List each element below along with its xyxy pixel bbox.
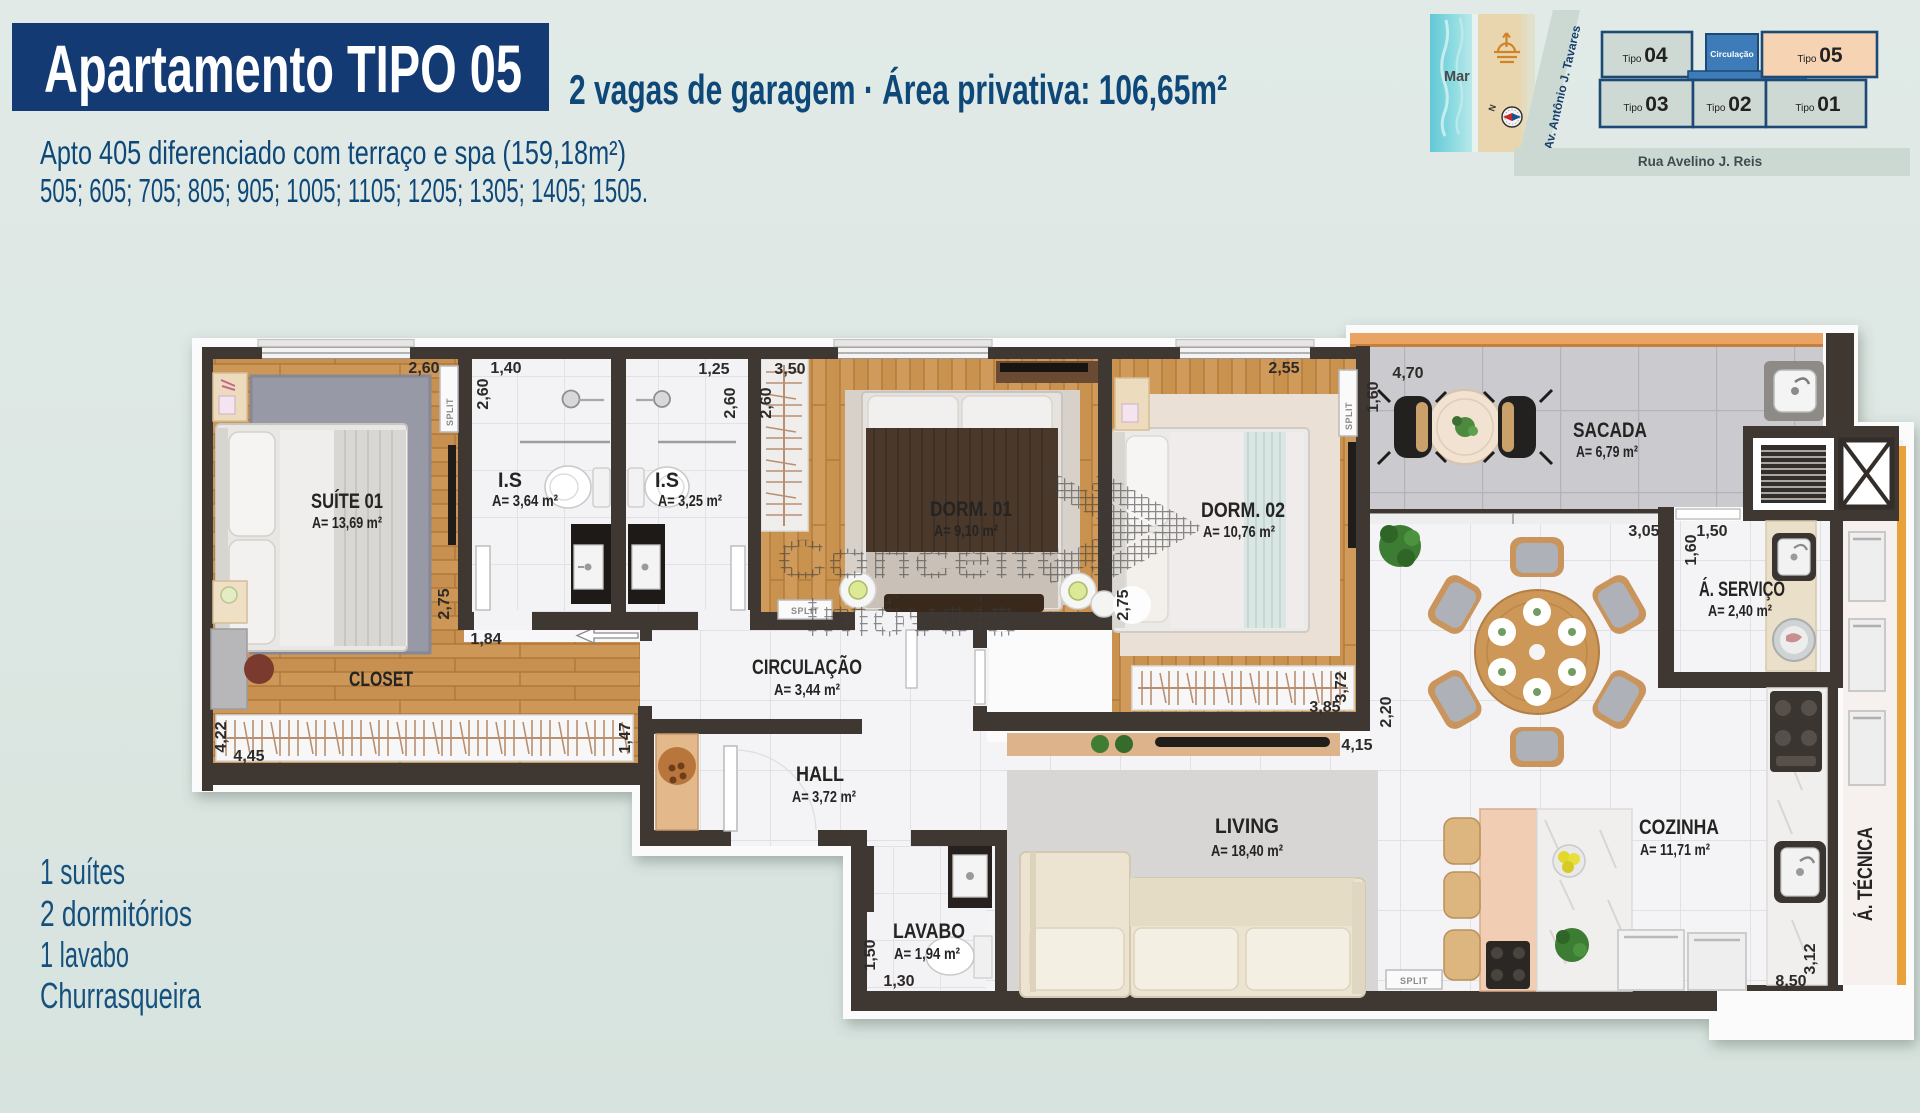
svg-text:4,45: 4,45 [233,748,264,765]
svg-text:SACADA: SACADA [1573,419,1647,442]
svg-text:1,60: 1,60 [1365,381,1382,412]
svg-text:Rua Avelino J. Reis: Rua Avelino J. Reis [1638,154,1762,169]
svg-text:1,30: 1,30 [883,973,914,990]
svg-text:Circulação: Circulação [1710,49,1753,59]
svg-text:LIVING: LIVING [1215,815,1279,838]
svg-text:Mar: Mar [1444,69,1470,85]
svg-text:1,50: 1,50 [862,939,879,970]
svg-text:Imóveis: Imóveis [805,586,1018,648]
svg-text:A= 6,79 m²: A= 6,79 m² [1576,444,1638,461]
svg-text:SUÍTE 01: SUÍTE 01 [311,490,383,513]
svg-text:2,75: 2,75 [1115,589,1132,620]
svg-text:COZINHA: COZINHA [1639,816,1719,839]
svg-text:2,60: 2,60 [758,387,775,418]
svg-text:1,50: 1,50 [1696,523,1727,540]
svg-text:A= 11,71 m²: A= 11,71 m² [1640,842,1710,859]
svg-text:2,20: 2,20 [1378,696,1395,727]
svg-text:2 dormitórios: 2 dormitórios [40,893,192,934]
svg-text:2,60: 2,60 [722,387,739,418]
svg-text:Apartamento TIPO 05: Apartamento TIPO 05 [44,32,522,107]
svg-text:LAVABO: LAVABO [893,920,965,943]
svg-text:1 suítes: 1 suítes [40,851,125,892]
svg-text:A= 3,44 m²: A= 3,44 m² [774,682,840,699]
svg-text:3,50: 3,50 [774,361,805,378]
svg-text:1,60: 1,60 [1683,534,1700,565]
svg-text:Á. SERVIÇO: Á. SERVIÇO [1699,578,1785,601]
svg-text:1,84: 1,84 [470,631,501,648]
svg-text:1,47: 1,47 [617,722,634,753]
svg-text:SPLIT: SPLIT [1344,402,1354,430]
svg-text:2,60: 2,60 [475,378,492,409]
svg-text:A= 3,72 m²: A= 3,72 m² [792,789,856,806]
svg-text:1,25: 1,25 [698,361,729,378]
svg-text:A= 1,94 m²: A= 1,94 m² [894,946,960,963]
svg-text:4,22: 4,22 [213,721,230,752]
svg-text:4,15: 4,15 [1341,737,1372,754]
svg-text:2 vagas de garagem · Área priv: 2 vagas de garagem · Área privativa: 106… [569,66,1227,113]
svg-text:A= 18,40 m²: A= 18,40 m² [1211,843,1283,860]
svg-text:DORM. 01: DORM. 01 [930,498,1012,521]
svg-text:3,05: 3,05 [1628,523,1659,540]
svg-text:I.S: I.S [655,469,679,492]
svg-text:1,40: 1,40 [490,360,521,377]
svg-text:4,70: 4,70 [1392,365,1423,382]
svg-text:505; 605; 705; 805; 905; 1005;: 505; 605; 705; 805; 905; 1005; 1105; 120… [40,172,648,209]
svg-text:A= 13,69 m²: A= 13,69 m² [312,515,382,532]
svg-text:A= 10,76 m²: A= 10,76 m² [1203,524,1275,541]
svg-text:1 lavabo: 1 lavabo [40,934,129,975]
svg-text:A= 2,40 m²: A= 2,40 m² [1708,603,1772,620]
svg-text:SPLIT: SPLIT [445,398,455,426]
svg-text:CLOSET: CLOSET [349,668,413,691]
svg-text:HALL: HALL [796,763,844,786]
svg-text:Apto 405 diferenciado com terr: Apto 405 diferenciado com terraço e spa … [40,134,626,171]
svg-text:I.S: I.S [498,469,522,492]
svg-text:CIRCULAÇÃO: CIRCULAÇÃO [752,656,862,679]
svg-text:3,12: 3,12 [1802,943,1819,974]
svg-text:SPLIT: SPLIT [1400,976,1428,986]
svg-text:3,72: 3,72 [1333,671,1350,702]
svg-text:Churrasqueira: Churrasqueira [40,975,202,1016]
svg-text:A= 3,64 m²: A= 3,64 m² [492,493,558,510]
svg-text:A= 3,25 m²: A= 3,25 m² [658,493,722,510]
svg-text:Á. TÉCNICA: Á. TÉCNICA [1854,827,1877,921]
svg-text:2,75: 2,75 [436,588,453,619]
svg-text:3,85: 3,85 [1309,699,1340,716]
svg-text:2,55: 2,55 [1268,360,1299,377]
svg-text:DORM. 02: DORM. 02 [1201,499,1285,522]
svg-text:Conceito: Conceito [776,528,1078,590]
svg-text:2,60: 2,60 [408,360,439,377]
